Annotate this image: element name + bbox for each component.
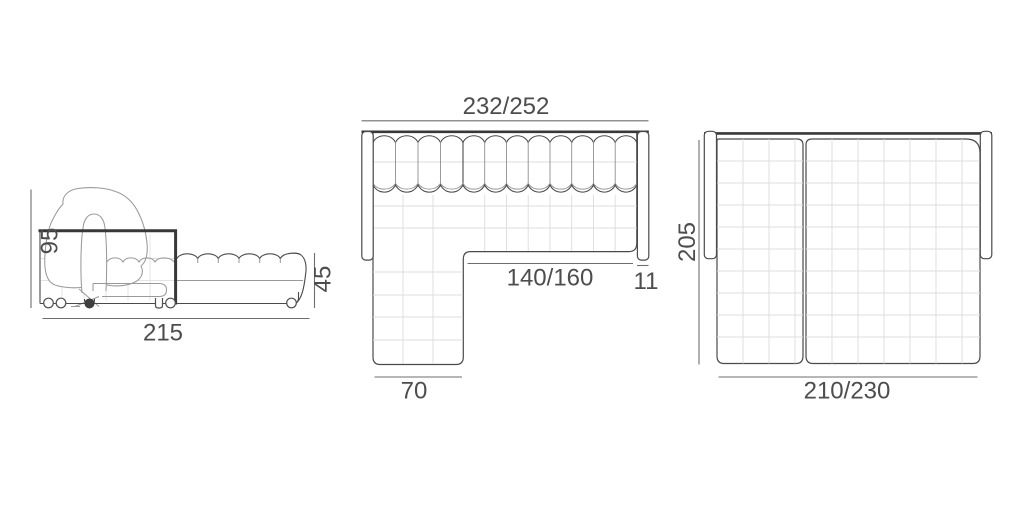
bed-top-view: 205 210/230 — [674, 131, 992, 404]
mattress-left-half — [717, 139, 803, 364]
right-armrest — [637, 132, 648, 261]
chaise-width-dimension-label: 70 — [401, 378, 428, 405]
side-view: 95 45 215 — [31, 188, 337, 347]
height-dimension-label: 95 — [37, 228, 64, 255]
sofa-body-outline — [373, 133, 637, 365]
chaise-profile — [177, 253, 306, 302]
length-dimension-label: 215 — [143, 320, 183, 347]
corner-sofa-top-view: 232/252 140/160 11 70 — [362, 93, 659, 405]
seat-height-dimension-label: 45 — [310, 266, 337, 293]
bed-width-dimension-label: 210/230 — [804, 378, 891, 405]
bed-right-armrest — [980, 131, 992, 258]
total-width-dimension-label: 232/252 — [463, 93, 550, 120]
armrest-dimension-label: 11 — [634, 268, 659, 295]
left-armrest — [362, 132, 373, 261]
bed-depth-dimension-label: 205 — [674, 222, 701, 262]
seat-width-dimension-label: 140/160 — [507, 265, 594, 292]
dimension-diagram: 95 45 215 232/252 — [0, 0, 1024, 512]
headrest-cushion-profile — [81, 214, 107, 293]
bed-left-armrest — [704, 131, 716, 258]
